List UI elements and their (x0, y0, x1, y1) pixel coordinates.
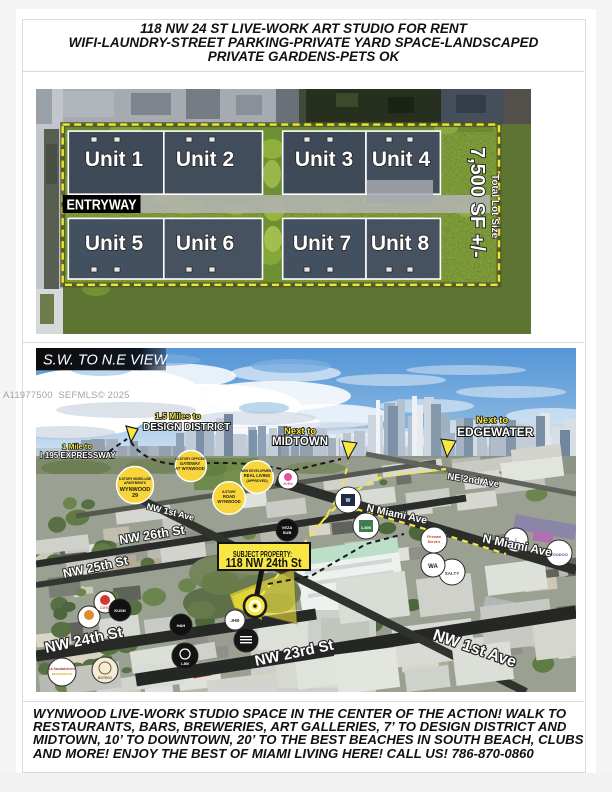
svg-text:Unit 3: Unit 3 (295, 148, 353, 171)
svg-text:118 NW 24th St: 118 NW 24th St (226, 555, 303, 570)
svg-text:WA: WA (428, 564, 438, 570)
svg-text:Unit 7: Unit 7 (293, 232, 351, 255)
svg-text:APARTMENTS: APARTMENTS (124, 481, 146, 485)
svg-text:SUB: SUB (283, 530, 292, 535)
svg-text:29: 29 (132, 493, 138, 499)
svg-text:VOODOO: VOODOO (550, 552, 568, 557)
svg-text:La Sandwicherie: La Sandwicherie (49, 667, 76, 671)
svg-text:Unit 2: Unit 2 (176, 148, 234, 171)
svg-text:SALTY: SALTY (445, 571, 459, 576)
svg-text:S.W. TO N.E VIEW: S.W. TO N.E VIEW (43, 353, 168, 369)
svg-text:I-195 EXPRESSWAY: I-195 EXPRESSWAY (40, 451, 116, 460)
svg-text:1 Mile to: 1 Mile to (62, 442, 92, 451)
svg-text:Fireman: Fireman (427, 535, 441, 539)
svg-text:W: W (346, 498, 351, 504)
svg-text:MIAMI BEACH: MIAMI BEACH (52, 672, 72, 676)
svg-text:Unit 8: Unit 8 (371, 232, 430, 255)
svg-text:Unit 4: Unit 4 (372, 148, 431, 171)
svg-text:1-800: 1-800 (361, 525, 372, 530)
svg-text:KUSH: KUSH (114, 608, 125, 613)
svg-text:MIDTOWN: MIDTOWN (272, 436, 328, 448)
svg-text:Total Lot Size: Total Lot Size (489, 174, 500, 239)
svg-text:EDGEWATER: EDGEWATER (457, 425, 534, 439)
svg-text:1-800: 1-800 (181, 662, 189, 666)
svg-text:AVRA: AVRA (283, 482, 293, 486)
svg-text:JHB: JHB (230, 618, 240, 623)
svg-text:DESIGN DISTRICT: DESIGN DISTRICT (143, 422, 230, 433)
svg-text:Unit 6: Unit 6 (176, 232, 234, 255)
svg-text:AT WYNWOOD: AT WYNWOOD (175, 466, 205, 471)
svg-text:BOTECO: BOTECO (98, 676, 112, 680)
svg-text:Unit 5: Unit 5 (85, 232, 144, 255)
svg-text:WYNWOOD: WYNWOOD (217, 499, 240, 504)
svg-text:COYO: COYO (100, 606, 110, 610)
svg-text:1.5 Miles to: 1.5 Miles to (155, 411, 201, 421)
svg-text:H&H: H&H (177, 623, 186, 628)
svg-text:7,500 SF +/-: 7,500 SF +/- (466, 147, 488, 258)
svg-text:ENTRYWAY: ENTRYWAY (67, 197, 137, 214)
svg-text:Derek's: Derek's (428, 540, 441, 544)
svg-text:(APPROVED): (APPROVED) (246, 479, 267, 483)
svg-text:REAL LIVING: REAL LIVING (244, 473, 270, 478)
svg-text:Unit 1: Unit 1 (85, 148, 144, 171)
